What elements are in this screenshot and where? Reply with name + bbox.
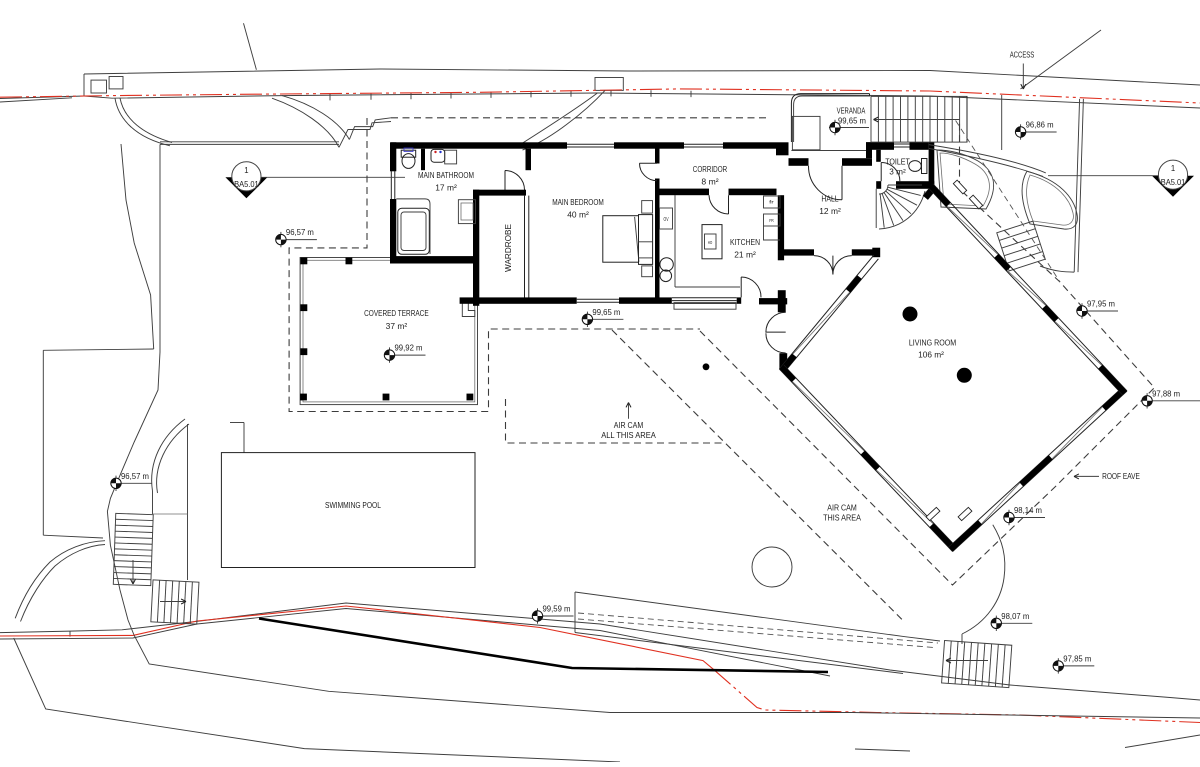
svg-text:40 m²: 40 m² [567,210,589,220]
svg-text:17 m²: 17 m² [435,183,457,193]
svg-text:SWIMMING POOL: SWIMMING POOL [325,500,381,510]
svg-text:97,88 m: 97,88 m [1152,389,1180,398]
svg-text:THIS AREA: THIS AREA [823,513,861,523]
svg-text:HALL: HALL [821,194,838,204]
svg-text:99,92 m: 99,92 m [395,344,423,353]
svg-text:37 m²: 37 m² [386,321,408,331]
svg-text:97,95 m: 97,95 m [1087,300,1115,309]
svg-text:CORRIDOR: CORRIDOR [693,164,727,174]
svg-text:AIR CAM: AIR CAM [827,503,856,513]
svg-text:VERANDA: VERANDA [837,107,866,116]
svg-text:TOILET: TOILET [885,158,910,167]
svg-text:ROOF EAVE: ROOF EAVE [1102,471,1140,481]
svg-text:FR: FR [769,218,774,223]
svg-text:OV: OV [664,217,669,223]
svg-text:98,14 m: 98,14 m [1014,506,1042,515]
svg-text:AIR CAM: AIR CAM [614,420,643,430]
svg-text:96,86 m: 96,86 m [1026,121,1054,130]
svg-text:99,59 m: 99,59 m [543,605,571,614]
svg-text:BA5.01: BA5.01 [234,180,259,189]
svg-text:12 m²: 12 m² [819,206,841,216]
svg-text:106 m²: 106 m² [918,350,944,360]
svg-text:97,85 m: 97,85 m [1063,654,1091,663]
svg-text:MAIN BATHROOM: MAIN BATHROOM [418,170,474,180]
svg-text:COVERED TERRACE: COVERED TERRACE [364,308,429,318]
svg-text:HO: HO [708,240,713,245]
svg-text:1: 1 [244,165,248,175]
svg-text:fr: fr [769,200,774,205]
svg-text:96,57 m: 96,57 m [286,228,314,237]
svg-text:99,65 m: 99,65 m [838,117,866,126]
svg-text:LIVING ROOM: LIVING ROOM [909,338,956,348]
svg-text:96,57 m: 96,57 m [121,472,149,481]
svg-text:1: 1 [1171,163,1175,173]
svg-text:MAIN BEDROOM: MAIN BEDROOM [552,197,604,207]
svg-text:98,07 m: 98,07 m [1001,612,1029,621]
svg-text:ALL THIS AREA: ALL THIS AREA [601,430,656,440]
svg-text:BA5.01: BA5.01 [1161,178,1186,187]
svg-text:8 m²: 8 m² [701,177,718,187]
svg-text:99,65 m: 99,65 m [592,308,620,317]
svg-text:21 m²: 21 m² [734,250,756,260]
svg-text:3 m²: 3 m² [889,168,906,177]
svg-text:ACCESS: ACCESS [1010,51,1035,60]
svg-text:KITCHEN: KITCHEN [730,237,760,247]
svg-text:WARDROBE: WARDROBE [504,224,513,272]
